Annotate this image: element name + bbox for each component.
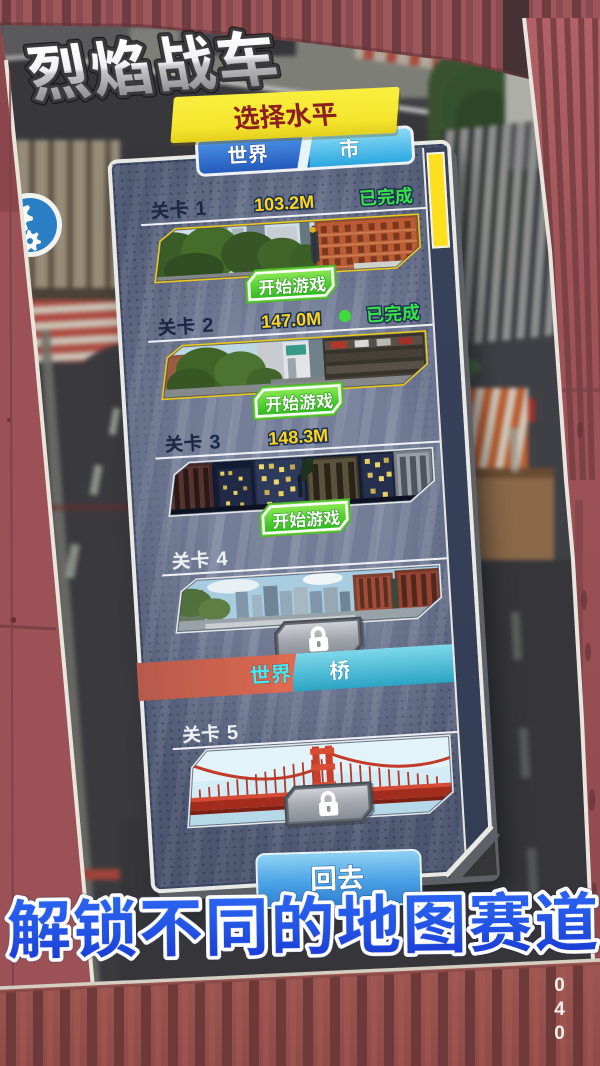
- svg-text:147.0M: 147.0M: [261, 308, 322, 332]
- svg-text:103.2M: 103.2M: [254, 192, 315, 216]
- svg-text:3: 3: [209, 431, 221, 454]
- svg-text:5: 5: [226, 722, 238, 745]
- svg-text:4: 4: [216, 548, 229, 571]
- svg-text:2: 2: [202, 314, 214, 337]
- svg-text:148.3M: 148.3M: [268, 425, 329, 449]
- svg-text:1: 1: [195, 198, 207, 221]
